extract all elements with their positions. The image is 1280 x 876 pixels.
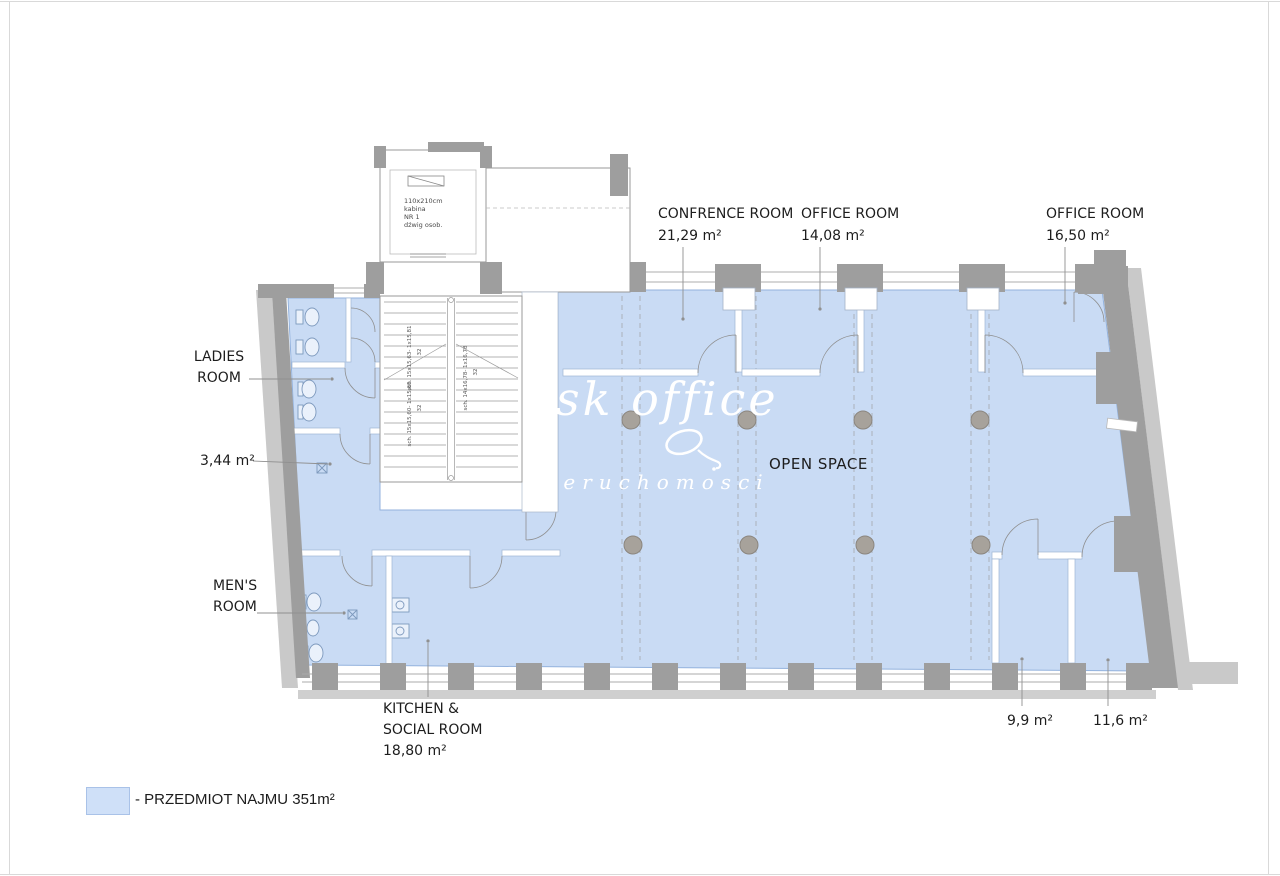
- open-space-label: OPEN SPACE: [769, 453, 868, 475]
- stair-risers-right: 32: [473, 369, 479, 376]
- floor-plan-drawing: sch. 15x15,63- 1x15,81 32 sch. 15x15,60-…: [0, 0, 1280, 876]
- kitchen-label: KITCHEN & SOCIAL ROOM 18,80 m²: [383, 699, 482, 762]
- office-top-name: OFFICE ROOM: [801, 203, 899, 225]
- mens-room-line2: ROOM: [213, 597, 257, 618]
- kitchen-line1: KITCHEN &: [383, 699, 482, 720]
- stair-note-right: sch. 14x16,78- 1x16,78: [463, 345, 469, 411]
- legend-rental-swatch: [86, 787, 130, 815]
- ladies-room-line2: ROOM: [180, 368, 258, 389]
- mens-room-label: MEN'S ROOM: [213, 576, 257, 618]
- office-right-name: OFFICE ROOM: [1046, 203, 1144, 225]
- stair-risers-left-lower: 32: [417, 405, 423, 412]
- stair-note-left-upper: sch. 15x15,63- 1x15,81: [407, 325, 413, 390]
- kitchen-line2: SOCIAL ROOM: [383, 720, 482, 741]
- ladies-room-area: 3,44 m²: [200, 450, 255, 472]
- small-room-right-area: 11,6 m²: [1093, 710, 1148, 732]
- office-right-area: 16,50 m²: [1046, 225, 1144, 247]
- stair-note-left-lower: sch. 15x15,60- 1x15,60: [407, 381, 413, 447]
- elevator-note: 110x210cm kabina NR 1 dźwig osob.: [404, 197, 476, 229]
- stair-risers-left-upper: 32: [417, 349, 423, 356]
- watermark-line2: ieruchomosci: [550, 470, 770, 494]
- kitchen-area: 18,80 m²: [383, 741, 482, 762]
- mens-room-line1: MEN'S: [213, 576, 257, 597]
- conference-room-label: CONFRENCE ROOM 21,29 m²: [658, 203, 793, 247]
- legend-label: - PRZEDMIOT NAJMU 351m²: [135, 791, 335, 808]
- office-top-area: 14,08 m²: [801, 225, 899, 247]
- floor-plan-page: sch. 15x15,63- 1x15,81 32 sch. 15x15,60-…: [0, 0, 1280, 876]
- ladies-room-label: LADIES ROOM: [180, 347, 258, 389]
- stairwell: sch. 15x15,63- 1x15,81 32 sch. 15x15,60-…: [380, 296, 522, 482]
- watermark-line1: sk office: [556, 372, 779, 426]
- office-right-label: OFFICE ROOM 16,50 m²: [1046, 203, 1144, 247]
- ladies-room-line1: LADIES: [180, 347, 258, 368]
- small-room-left-area: 9,9 m²: [1007, 710, 1053, 732]
- conference-room-area: 21,29 m²: [658, 225, 793, 247]
- office-top-label: OFFICE ROOM 14,08 m²: [801, 203, 899, 247]
- conference-room-name: CONFRENCE ROOM: [658, 203, 793, 225]
